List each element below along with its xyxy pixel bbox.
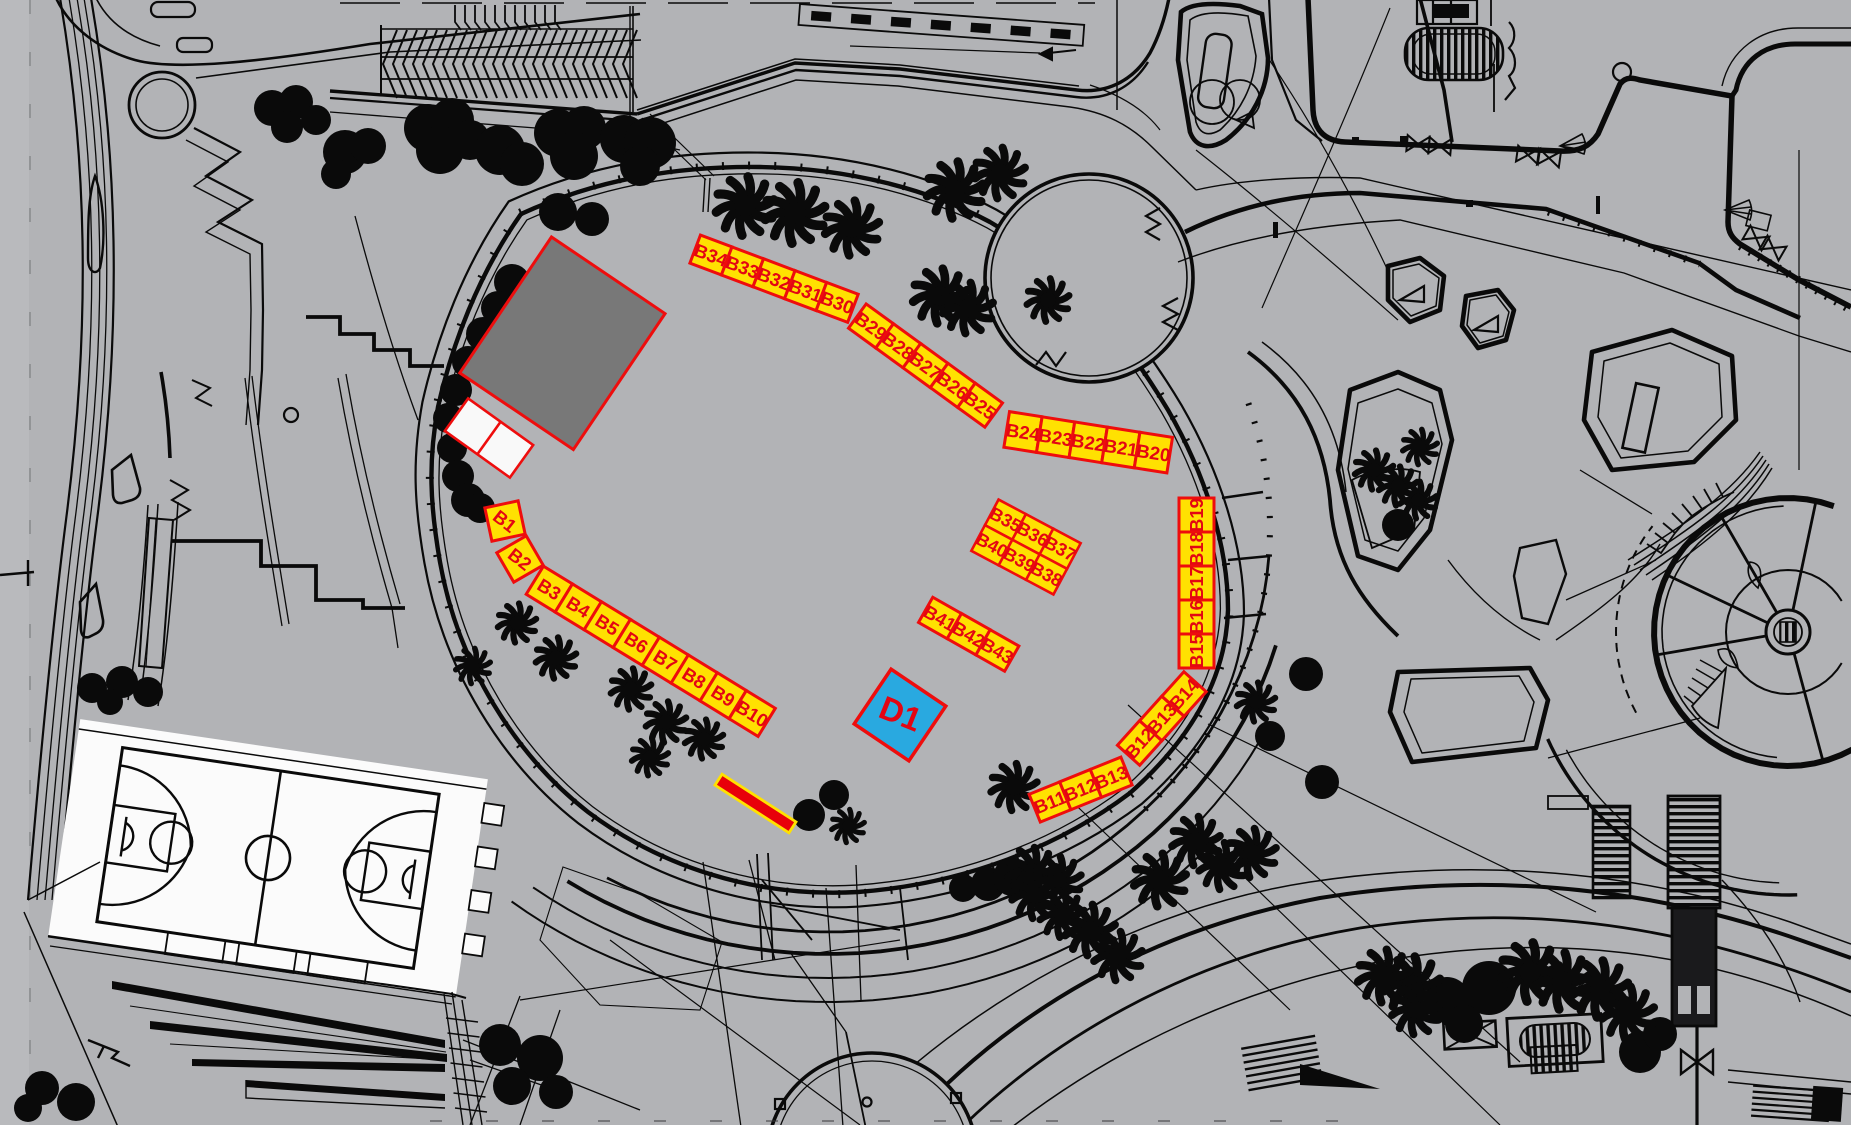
svg-text:B17: B17 — [1186, 566, 1207, 600]
svg-text:B16: B16 — [1186, 600, 1207, 634]
svg-text:B19: B19 — [1186, 498, 1207, 532]
svg-text:B15: B15 — [1186, 634, 1207, 668]
svg-text:B18: B18 — [1186, 532, 1207, 566]
